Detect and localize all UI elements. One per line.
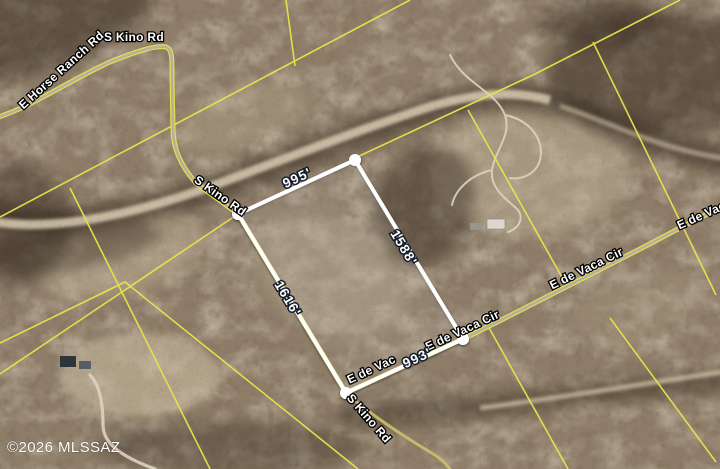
satellite-map-canvas[interactable]: E Horse Ranch Rd S Kino Rd S Kino Rd S K… — [0, 0, 720, 469]
road-label-s-kino-rd-top: S Kino Rd — [104, 30, 164, 44]
satellite-map[interactable]: E Horse Ranch Rd S Kino Rd S Kino Rd S K… — [0, 0, 720, 469]
building — [487, 219, 505, 229]
building — [79, 361, 91, 369]
map-attribution: ©2026 MLSSAZ — [7, 439, 120, 456]
parcel-vertex-ne — [349, 154, 361, 166]
building — [470, 223, 481, 230]
building — [60, 356, 76, 367]
